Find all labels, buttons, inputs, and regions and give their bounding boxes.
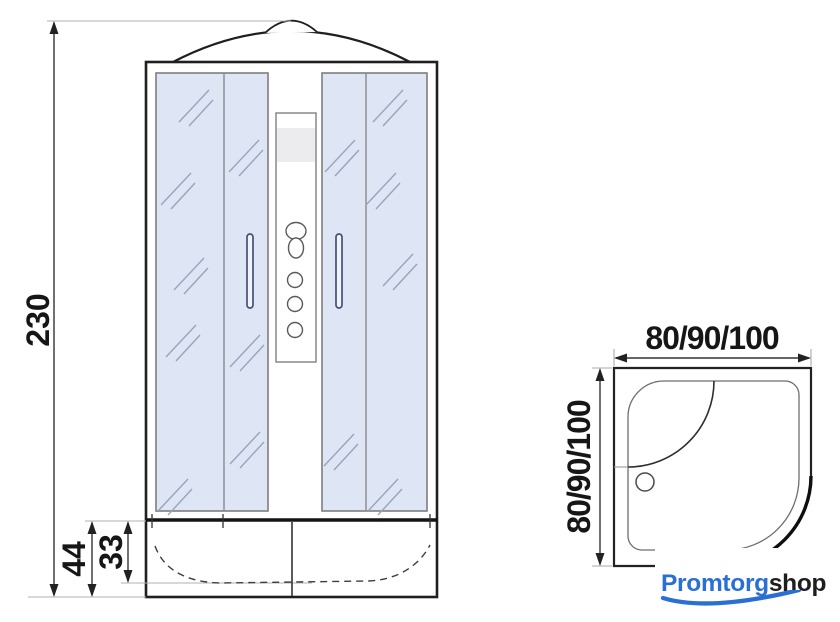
arrow-down-icon — [596, 553, 605, 566]
arrow-down-icon — [124, 570, 133, 583]
arrow-down-icon — [50, 584, 59, 597]
arrow-up-icon — [50, 21, 59, 34]
width-dimension: 80/90/100 — [614, 320, 811, 366]
jet-button[interactable] — [288, 273, 303, 288]
arrow-up-icon — [88, 521, 97, 534]
door-handle-left[interactable] — [247, 234, 253, 308]
height-dimension-label: 230 — [20, 293, 56, 346]
panel-shelf — [277, 128, 315, 162]
mixer-knob[interactable] — [286, 223, 306, 240]
mixer-lever[interactable] — [289, 238, 304, 258]
drain-icon — [636, 473, 654, 491]
arrow-right-icon — [798, 354, 811, 363]
arrow-left-icon — [614, 354, 627, 363]
depth-dimension-label: 80/90/100 — [561, 400, 597, 534]
front-view-drawing: 230 44 33 — [0, 0, 460, 622]
width-dimension-label: 80/90/100 — [645, 320, 779, 356]
door-handle-right[interactable] — [336, 234, 342, 308]
tray-depth-dimension-label: 33 — [93, 534, 129, 570]
brand-logo: Promtorgshop — [655, 548, 840, 622]
height-dimension: 230 — [20, 21, 59, 597]
base-height-dimension: 44 — [56, 521, 97, 597]
base-height-dimension-label: 44 — [56, 541, 92, 577]
brand-swoosh-icon — [657, 590, 807, 616]
depth-dimension: 80/90/100 — [561, 368, 612, 566]
arrow-up-icon — [596, 368, 605, 381]
tray-depth-dimension: 33 — [93, 521, 133, 583]
control-panel — [276, 113, 316, 362]
arrow-down-icon — [88, 584, 97, 597]
jet-button[interactable] — [288, 297, 303, 312]
jet-button[interactable] — [288, 323, 303, 338]
technical-drawing: 230 44 33 — [0, 0, 840, 622]
arrow-up-icon — [124, 521, 133, 534]
dome-roof — [173, 21, 410, 62]
